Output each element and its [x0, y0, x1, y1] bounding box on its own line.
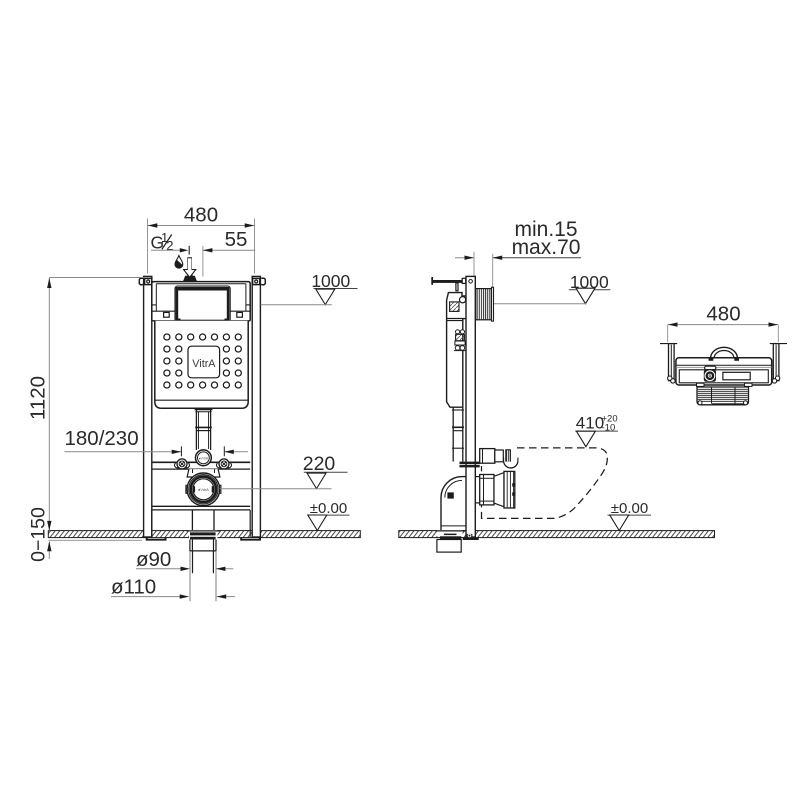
svg-text:-10: -10 [602, 423, 616, 434]
svg-text:●VıtrA: ●VıtrA [198, 488, 209, 492]
svg-text:0−150: 0−150 [28, 507, 50, 562]
svg-text:55: 55 [225, 228, 248, 251]
svg-text:max.70: max.70 [512, 236, 581, 259]
svg-text:1120: 1120 [27, 376, 50, 420]
svg-text:●VıtrA: ●VıtrA [199, 457, 209, 461]
svg-text:480: 480 [184, 203, 218, 226]
svg-text:410: 410 [576, 413, 604, 432]
svg-text:ø110: ø110 [111, 575, 156, 598]
svg-text:±0.00: ±0.00 [310, 500, 347, 517]
svg-text:480: 480 [706, 303, 740, 326]
svg-text:220: 220 [303, 453, 336, 475]
svg-text:ø90: ø90 [136, 548, 171, 571]
svg-text:±0.00: ±0.00 [611, 500, 648, 517]
svg-text:VitrA: VitrA [192, 358, 216, 370]
svg-text:180/230: 180/230 [65, 427, 139, 450]
